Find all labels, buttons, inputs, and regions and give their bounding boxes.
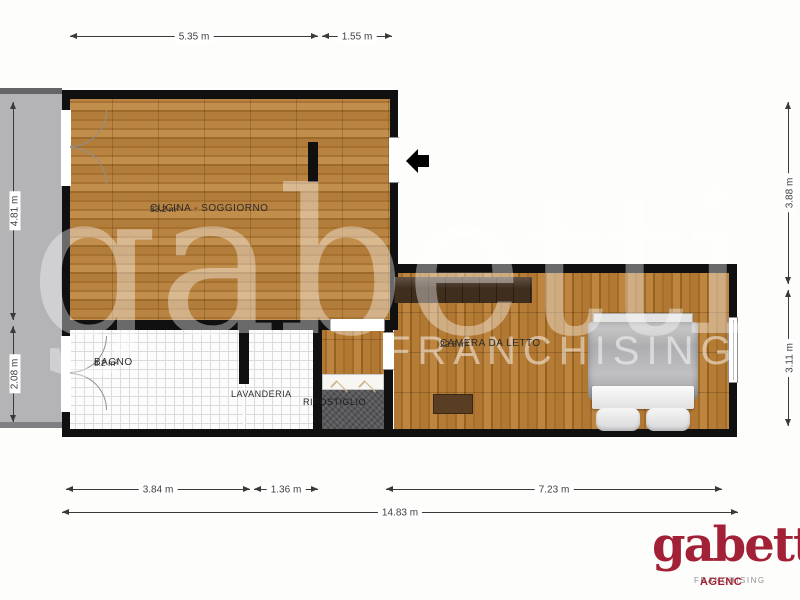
bed-pillow-right (646, 408, 690, 431)
dim-bottom-camera: 7.23 m (386, 489, 722, 490)
balcony-bottom-edge (0, 422, 62, 428)
floor-plan-canvas: gabetti FRANCHISING CUCINA - SOGGIORNO 3… (0, 0, 800, 600)
entrance-arrow-icon (406, 147, 430, 175)
dim-right-upper: 3.88 m (788, 102, 789, 284)
floor-ripostiglio (318, 388, 388, 433)
dim-right-lower: 3.11 m (788, 290, 789, 426)
agency-logo-agency: AGENC (700, 576, 742, 588)
bed-pillow-left (596, 408, 640, 431)
dim-bottom-lavanderia: 1.36 m (254, 489, 318, 490)
agency-logo-brand: gabetti (652, 520, 800, 570)
bedroom-bench (433, 394, 473, 414)
dim-top-entry: 1.55 m (322, 36, 392, 37)
bed-blanket (592, 386, 694, 409)
dim-bottom-total: 14.83 m (62, 512, 738, 513)
entrance-arrow-tail (417, 155, 429, 167)
dim-bottom-bagno: 3.84 m (66, 489, 250, 490)
dim-left-bagno: 2.08 m (13, 326, 14, 422)
balcony-top-edge (0, 88, 62, 94)
dim-top-kitchen: 5.35 m (70, 36, 318, 37)
watermark-subtitle: FRANCHISING (386, 329, 739, 374)
wall-top (62, 90, 398, 99)
dim-left-kitchen: 4.81 m (13, 102, 14, 320)
